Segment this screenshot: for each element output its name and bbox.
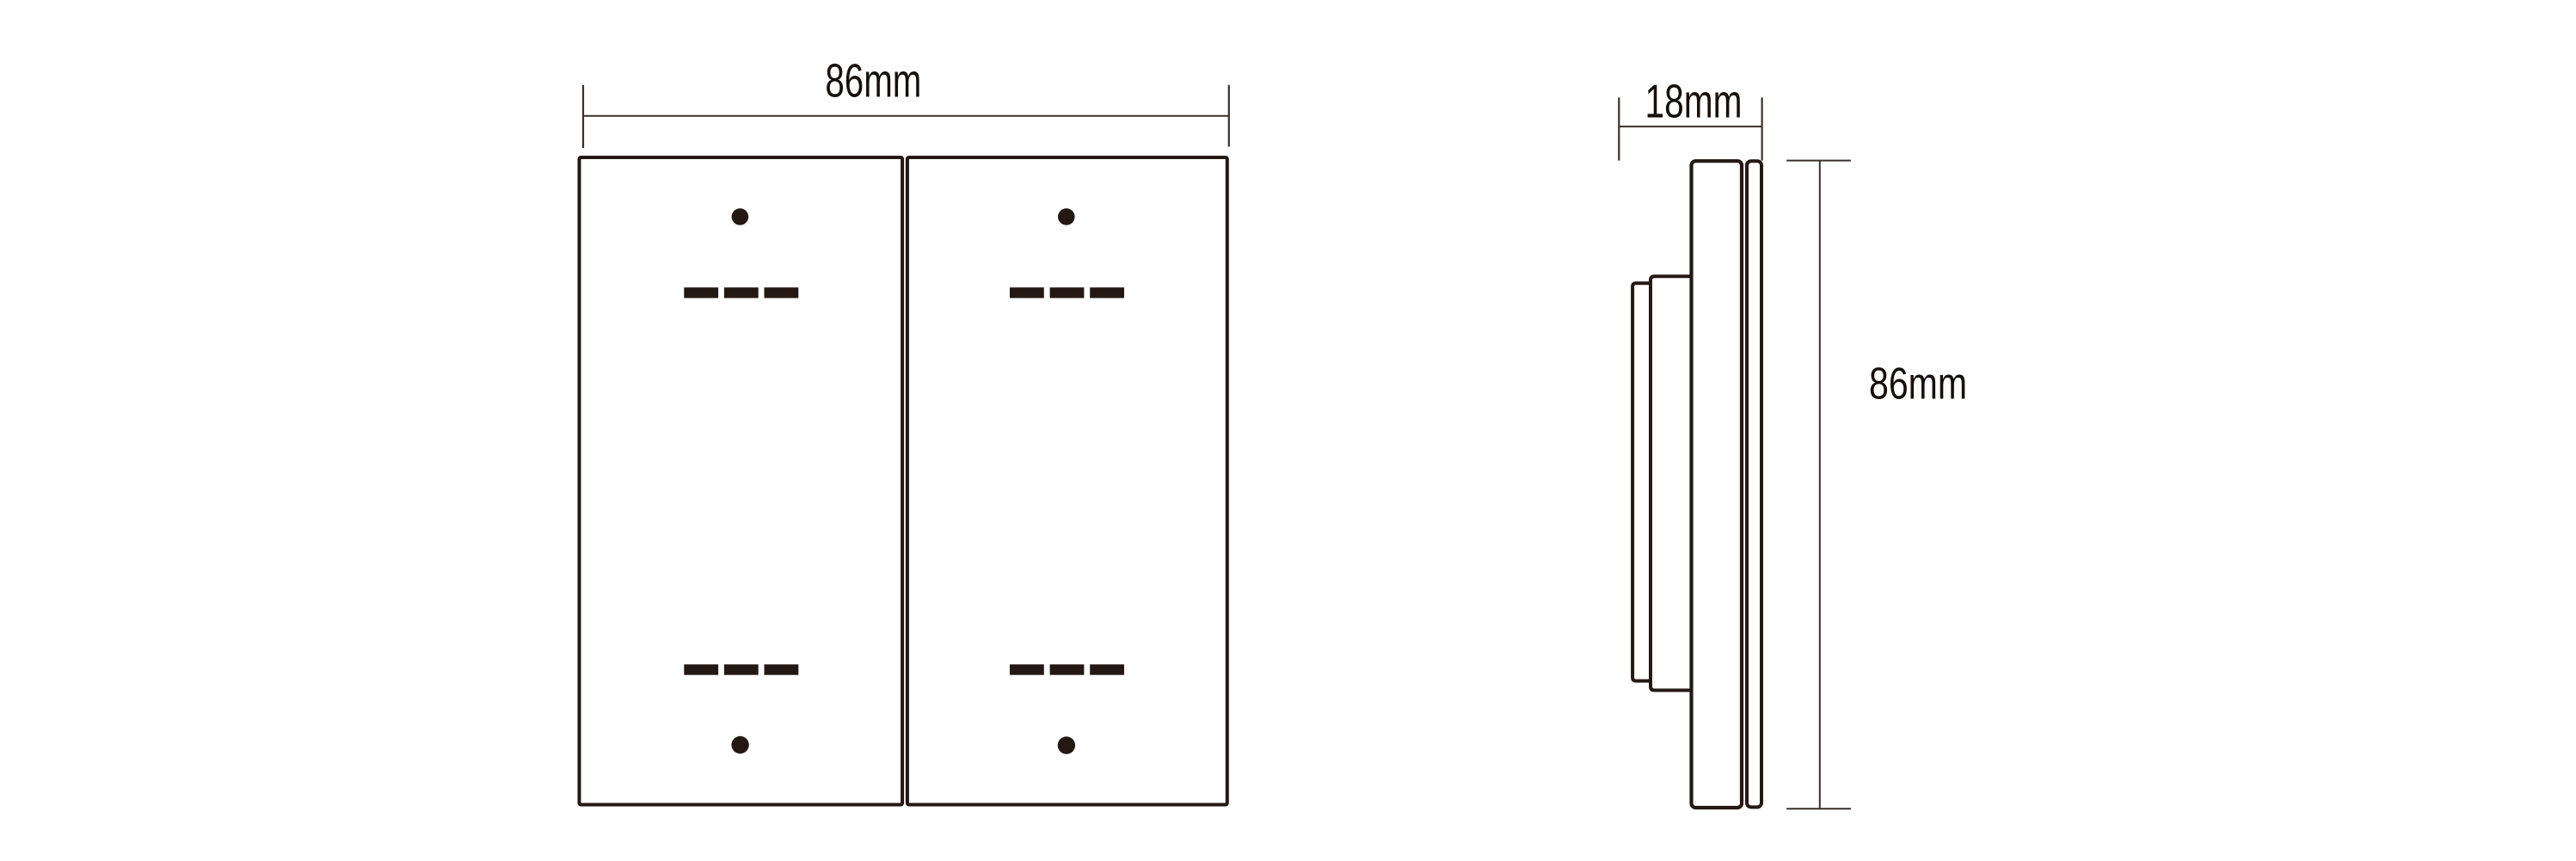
svg-text:86mm: 86mm xyxy=(825,53,921,107)
svg-text:86mm: 86mm xyxy=(1869,359,1967,409)
svg-text:18mm: 18mm xyxy=(1645,74,1743,127)
